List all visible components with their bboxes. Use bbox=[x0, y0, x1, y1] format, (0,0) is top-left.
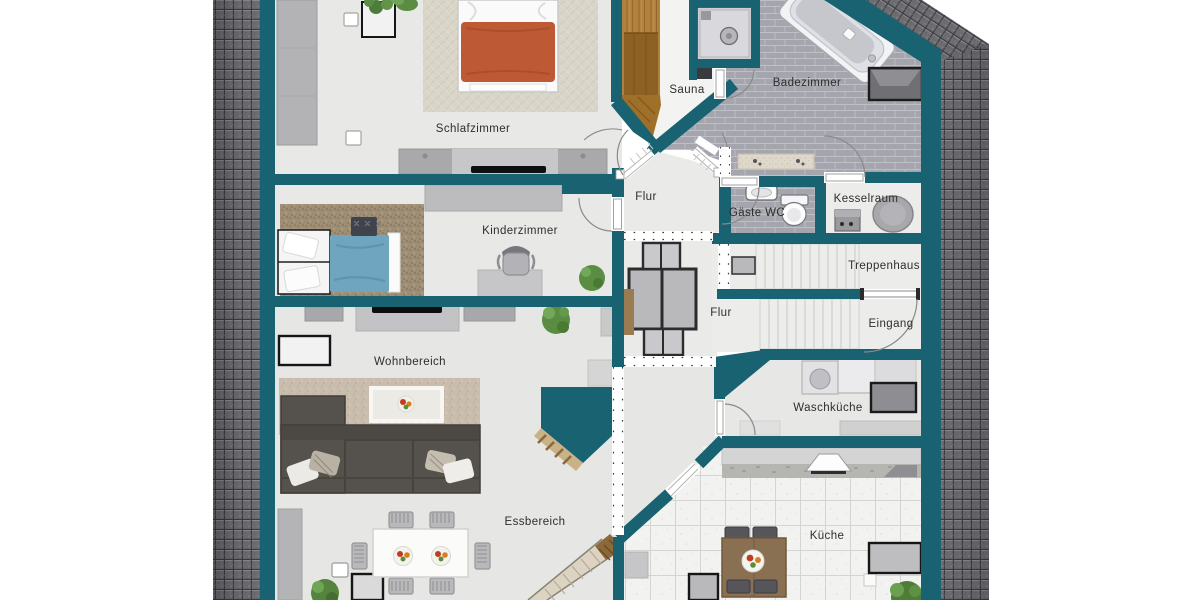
svg-text:Waschküche: Waschküche bbox=[793, 402, 862, 414]
svg-text:Wohnbereich: Wohnbereich bbox=[374, 356, 446, 368]
svg-text:Gäste WC: Gäste WC bbox=[729, 207, 785, 219]
svg-text:Sauna: Sauna bbox=[669, 84, 704, 96]
svg-text:Kesselraum: Kesselraum bbox=[834, 193, 899, 205]
svg-text:Flur: Flur bbox=[635, 191, 656, 203]
svg-text:Kinderzimmer: Kinderzimmer bbox=[482, 225, 558, 237]
svg-text:Flur: Flur bbox=[710, 307, 731, 319]
svg-text:Treppenhaus: Treppenhaus bbox=[848, 260, 920, 272]
svg-text:Essbereich: Essbereich bbox=[505, 516, 566, 528]
svg-text:Eingang: Eingang bbox=[868, 318, 913, 330]
svg-text:Küche: Küche bbox=[810, 530, 845, 542]
svg-text:Schlafzimmer: Schlafzimmer bbox=[436, 123, 510, 135]
svg-text:Badezimmer: Badezimmer bbox=[773, 77, 842, 89]
